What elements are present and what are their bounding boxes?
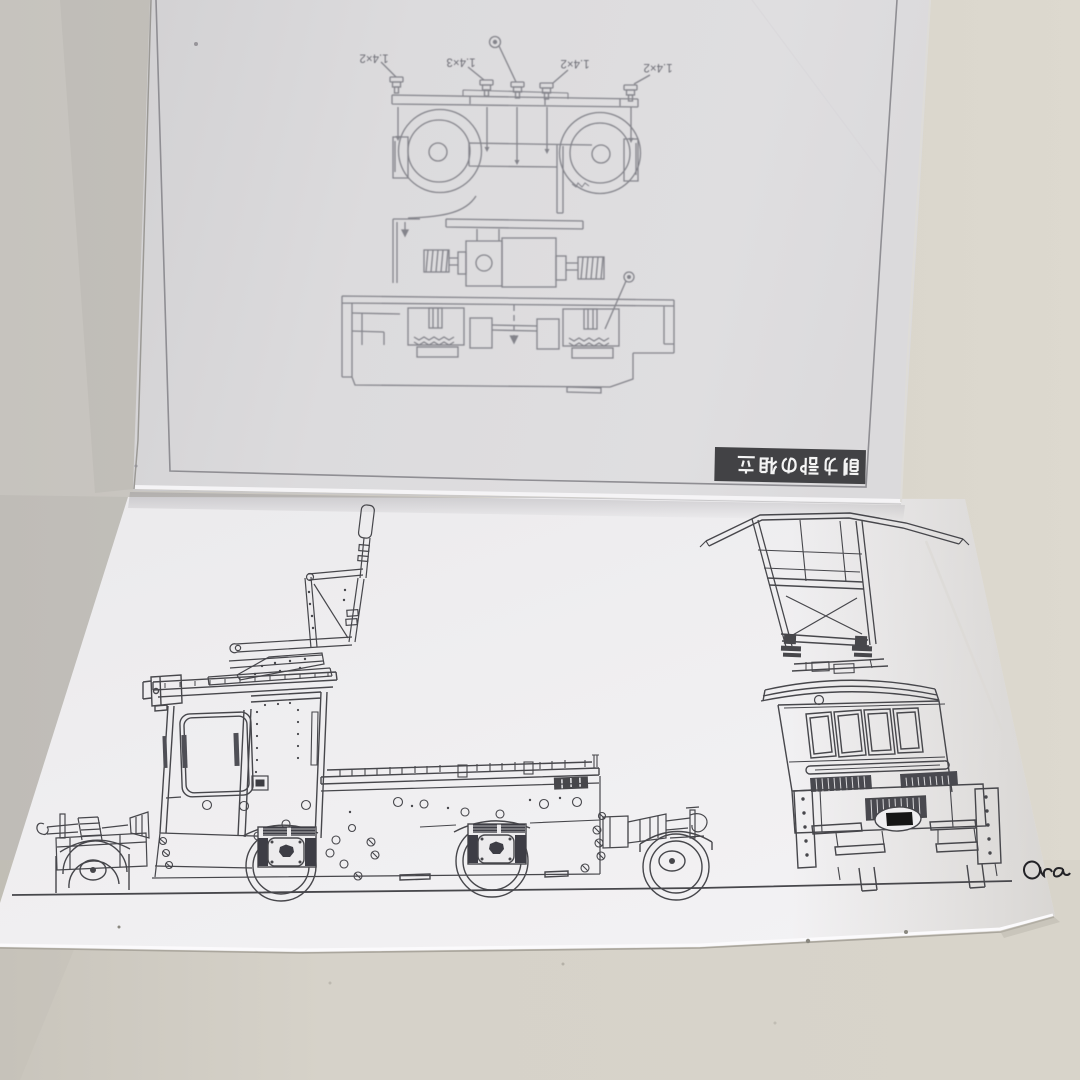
- svg-text:1.4×2: 1.4×2: [643, 61, 672, 73]
- svg-text:1.4×3: 1.4×3: [446, 56, 475, 68]
- svg-text:1.4×2: 1.4×2: [359, 52, 388, 64]
- svg-text:1.4×2: 1.4×2: [560, 57, 589, 69]
